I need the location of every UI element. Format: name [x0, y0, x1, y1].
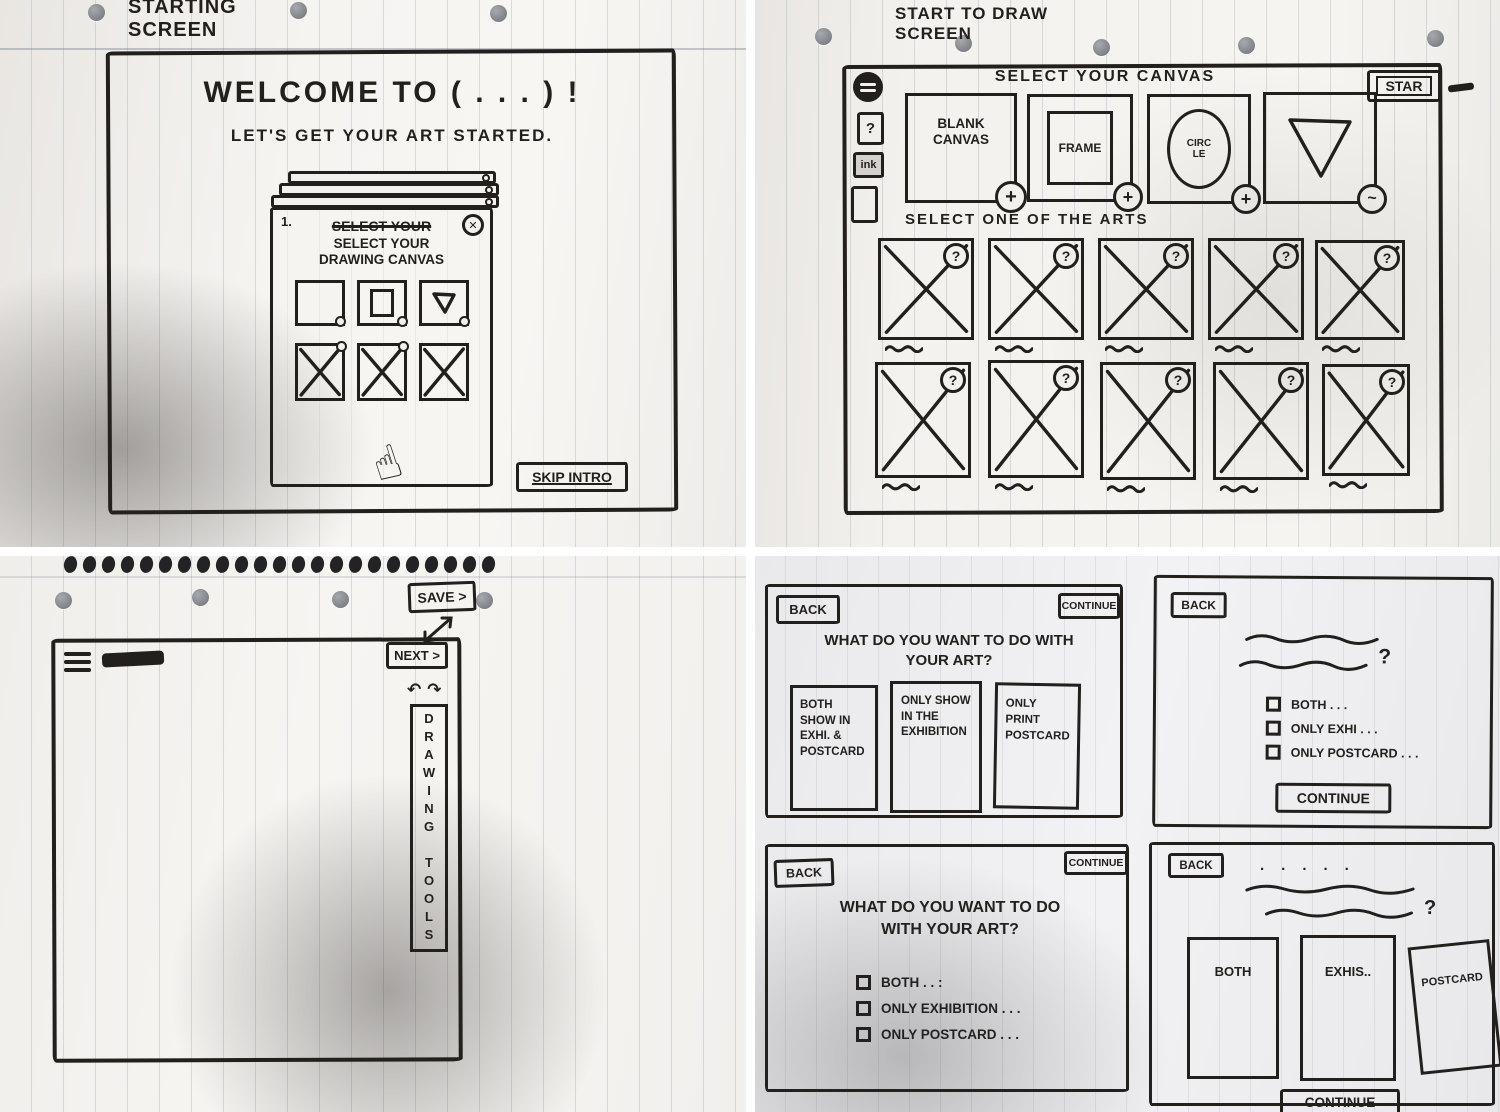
placeholder-squiggle — [1238, 656, 1368, 671]
art-placeholder[interactable]: ? — [988, 238, 1084, 340]
checkbox-label: ONLY EXHI . . . — [1291, 721, 1378, 736]
option-card[interactable]: ONLY PRINT POSTCARD — [993, 682, 1081, 809]
punch-hole — [1093, 39, 1110, 56]
close-icon[interactable]: ✕ — [462, 214, 484, 236]
help-icon[interactable]: ? — [857, 112, 884, 145]
app-window-frame — [51, 637, 462, 1062]
start-button[interactable]: STAR — [1367, 70, 1441, 102]
checkbox-label: BOTH . . . — [1291, 697, 1347, 711]
question-heading: WHAT DO YOU WANT TO DO WITH YOUR ART? — [818, 897, 1082, 940]
info-badge[interactable]: ? — [1278, 367, 1304, 393]
arts-section-title: SELECT ONE OF THE ARTS — [905, 211, 1225, 228]
select-dot — [459, 316, 470, 327]
mini-screen-question-checkboxes: BACK CONTINUE WHAT DO YOU WANT TO DO WIT… — [765, 844, 1129, 1092]
canvas-option-frame[interactable]: FRAME + — [1027, 94, 1133, 202]
stack-dot — [485, 198, 493, 206]
start-to-draw-photo: START TO DRAW SCREEN SELECT YOUR CANVAS … — [755, 0, 1500, 547]
option-card[interactable]: POSTCARD — [1408, 939, 1500, 1075]
mini-screen-choice-cards: BACK CONTINUE WHAT DO YOU WANT TO DO WIT… — [765, 584, 1123, 818]
arrow-mark — [1448, 82, 1475, 92]
punch-hole — [88, 4, 105, 21]
back-button[interactable]: BACK — [774, 858, 835, 888]
continue-button[interactable]: CONTINUE — [1275, 783, 1391, 814]
back-button-label: BACK — [789, 602, 827, 617]
question-mark: ? — [1424, 897, 1436, 920]
drawing-tools-panel[interactable]: DRAWING TOOLS — [410, 704, 448, 952]
stack-dot — [482, 174, 490, 182]
pointer-hand-sketch: ☝ — [365, 433, 408, 493]
continue-button[interactable]: CONTINUE — [1064, 851, 1128, 875]
back-button[interactable]: BACK — [776, 595, 840, 624]
add-badge[interactable]: + — [1231, 184, 1261, 214]
checkbox-icon[interactable] — [856, 1001, 871, 1016]
placeholder-squiggle — [1244, 881, 1416, 895]
checkbox-icon[interactable] — [1266, 721, 1281, 736]
canvas-option-label: BLANK CANVAS — [924, 116, 998, 148]
caption-squiggle — [1215, 343, 1253, 353]
art-placeholder[interactable]: ? — [988, 360, 1084, 478]
checkbox-option[interactable]: ONLY POSTCARD . . . — [1266, 745, 1419, 761]
art-thumbnail-placeholder[interactable] — [419, 343, 469, 401]
reset-badge[interactable]: ~ — [1357, 184, 1387, 214]
art-thumbnail-placeholder[interactable] — [295, 343, 345, 401]
caption-squiggle — [1329, 479, 1367, 489]
continue-button-label: CONTINUE — [1062, 600, 1117, 612]
art-placeholder[interactable]: ? — [1322, 364, 1410, 476]
canvas-option-label: FRAME — [1047, 111, 1113, 185]
checkbox-icon[interactable] — [856, 975, 871, 990]
back-button-label: BACK — [786, 865, 823, 880]
save-button-label: SAVE > — [417, 588, 467, 606]
info-badge[interactable]: ? — [1273, 243, 1299, 269]
back-button-label: BACK — [1179, 860, 1212, 872]
select-dot — [335, 316, 346, 327]
punch-hole — [192, 589, 209, 606]
spiral-binding — [64, 556, 534, 573]
back-button[interactable]: BACK — [1168, 853, 1224, 878]
art-placeholder[interactable]: ? — [1100, 362, 1196, 480]
checkbox-option[interactable]: BOTH . . . — [1266, 697, 1419, 713]
continue-button[interactable]: CONTINUE — [1058, 593, 1120, 619]
canvas-header-title: SELECT YOUR CANVAS — [980, 68, 1230, 86]
checkbox-label: ONLY POSTCARD . . . — [881, 1027, 1019, 1042]
punch-hole — [815, 28, 832, 45]
undo-icon[interactable]: ↶ — [407, 680, 421, 700]
option-card[interactable]: BOTH SHOW IN EXHI. & POSTCARD — [790, 685, 878, 811]
question-mark: ? — [1378, 645, 1391, 669]
canvas-option-circle[interactable]: CIRC LE + — [1147, 94, 1251, 204]
welcome-title: WELCOME TO ( . . . ) ! — [117, 76, 667, 110]
skip-intro-label: SKIP INTRO — [532, 469, 612, 485]
caption-squiggle — [995, 481, 1033, 491]
triangle-icon — [1284, 114, 1356, 182]
placeholder-dots: · · · · · — [1260, 861, 1356, 878]
continue-button-label: CONTINUE — [1069, 857, 1124, 869]
info-badge[interactable]: ? — [1163, 243, 1189, 269]
art-placeholder[interactable]: ? — [875, 362, 971, 478]
caption-squiggle — [1322, 343, 1360, 353]
margin-line — [0, 576, 746, 578]
info-badge[interactable]: ? — [943, 243, 969, 269]
info-badge[interactable]: ? — [1053, 243, 1079, 269]
punch-hole — [1427, 30, 1444, 47]
canvas-option-triangle[interactable]: ~ — [1263, 92, 1377, 204]
x-placeholder-icon — [299, 347, 341, 397]
canvas-shape-triangle[interactable] — [419, 280, 469, 326]
modal-title: SELECT YOUR DRAWING CANVAS — [306, 236, 458, 267]
caption-squiggle — [1220, 483, 1258, 493]
save-button[interactable]: SAVE > — [407, 581, 476, 613]
canvas-shape-frame[interactable] — [357, 280, 407, 326]
art-destination-photo: BACK CONTINUE WHAT DO YOU WANT TO DO WIT… — [755, 556, 1500, 1112]
add-badge[interactable]: + — [995, 181, 1027, 213]
menu-circle-icon[interactable] — [853, 72, 883, 102]
starting-screen-photo: STARTING SCREEN WELCOME TO ( . . . ) ! L… — [0, 0, 746, 547]
checkbox-label: ONLY EXHIBITION . . . — [881, 1001, 1021, 1016]
sketch-photo-collage: STARTING SCREEN WELCOME TO ( . . . ) ! L… — [0, 0, 1500, 1112]
next-button-label: NEXT > — [394, 648, 440, 663]
art-placeholder[interactable]: ? — [1208, 238, 1304, 340]
checkbox-option[interactable]: ONLY POSTCARD . . . — [856, 1027, 1021, 1042]
punch-hole — [476, 592, 493, 609]
caption-squiggle — [885, 343, 923, 353]
caption-squiggle — [882, 481, 920, 491]
continue-button-label: CONTINUE — [1297, 790, 1370, 807]
back-button-label: BACK — [1181, 598, 1216, 612]
start-button-label: STAR — [1376, 76, 1431, 96]
caption-squiggle — [1107, 483, 1145, 493]
redo-icon[interactable]: ↷ — [427, 680, 441, 700]
art-thumbnail-placeholder[interactable] — [357, 343, 407, 401]
info-badge[interactable]: ? — [1053, 365, 1079, 391]
punch-hole — [332, 591, 349, 608]
select-dot — [336, 341, 347, 352]
drawing-tools-label: DRAWING TOOLS — [422, 711, 437, 945]
drawing-screen-photo: SAVE > NEXT > ↶ ↷ DRAWING TOOLS — [0, 556, 746, 1112]
next-button[interactable]: NEXT > — [386, 642, 448, 669]
caption-squiggle — [995, 343, 1033, 353]
welcome-subtitle: LET'S GET YOUR ART STARTED. — [117, 126, 667, 146]
checkbox-icon[interactable] — [856, 1027, 871, 1042]
step-number: 1. — [281, 214, 292, 229]
checkbox-option[interactable]: ONLY EXHIBITION . . . — [856, 1001, 1021, 1016]
info-badge[interactable]: ? — [1374, 245, 1400, 271]
blank-tool-icon[interactable] — [851, 186, 878, 223]
checkbox-option[interactable]: ONLY EXHI . . . — [1266, 721, 1419, 737]
x-placeholder-icon — [423, 347, 465, 397]
crossed-out-text: SELECT YOUR — [273, 218, 490, 234]
art-placeholder[interactable]: ? — [878, 238, 974, 340]
stack-dot — [485, 186, 493, 194]
caption-squiggle — [1105, 343, 1143, 353]
continue-button-label: CONTINUE — [1305, 1095, 1376, 1110]
punch-hole — [290, 2, 307, 19]
checkbox-label: ONLY POSTCARD . . . — [1291, 745, 1419, 760]
option-card[interactable]: EXHIS.. — [1300, 935, 1396, 1081]
info-badge[interactable]: ? — [1165, 367, 1191, 393]
placeholder-squiggle — [1264, 905, 1414, 919]
triangle-icon — [431, 291, 457, 315]
checkbox-icon[interactable] — [1266, 745, 1281, 760]
checkbox-icon[interactable] — [1266, 697, 1281, 712]
sketch-annotation: STARTING SCREEN — [128, 0, 258, 42]
canvas-option-label: CIRC LE — [1167, 109, 1231, 189]
option-card[interactable]: BOTH — [1187, 937, 1279, 1079]
mini-screen-choice-cards-small: BACK · · · · · ? BOTH EXHIS.. POSTCARD C… — [1149, 842, 1495, 1106]
punch-hole — [55, 592, 72, 609]
question-heading: WHAT DO YOU WANT TO DO WITH YOUR ART? — [816, 631, 1082, 670]
checkbox-option[interactable]: BOTH . . : — [856, 975, 1021, 990]
info-badge[interactable]: ? — [1379, 369, 1405, 395]
option-card[interactable]: ONLY SHOW IN THE EXHIBITION — [890, 681, 982, 813]
hamburger-menu-icon[interactable] — [64, 652, 91, 672]
continue-button[interactable]: CONTINUE — [1280, 1089, 1400, 1112]
skip-intro-button[interactable]: SKIP INTRO — [516, 462, 628, 492]
canvas-shape-blank[interactable] — [295, 280, 345, 326]
select-dot — [398, 341, 409, 352]
checkbox-label: BOTH . . : — [881, 975, 943, 990]
x-placeholder-icon — [361, 347, 403, 397]
select-dot — [397, 316, 408, 327]
onboarding-modal: 1. ✕ SELECT YOUR SELECT YOUR DRAWING CAN… — [270, 207, 493, 487]
mini-screen-checkboxes: BACK ? BOTH . . . ONLY EXHI . . . ONLY P… — [1152, 575, 1494, 829]
canvas-option-blank[interactable]: BLANK CANVAS + — [905, 93, 1017, 203]
ink-tool-icon[interactable]: ink — [853, 152, 884, 178]
back-button[interactable]: BACK — [1171, 592, 1227, 618]
art-placeholder[interactable]: ? — [1213, 362, 1309, 480]
punch-hole — [1238, 37, 1255, 54]
info-badge[interactable]: ? — [940, 367, 966, 393]
art-placeholder[interactable]: ? — [1315, 240, 1405, 340]
placeholder-squiggle — [1244, 630, 1379, 645]
punch-hole — [490, 5, 507, 22]
art-placeholder[interactable]: ? — [1098, 238, 1194, 340]
sketch-annotation: START TO DRAW SCREEN — [895, 4, 1065, 43]
add-badge[interactable]: + — [1113, 182, 1143, 212]
